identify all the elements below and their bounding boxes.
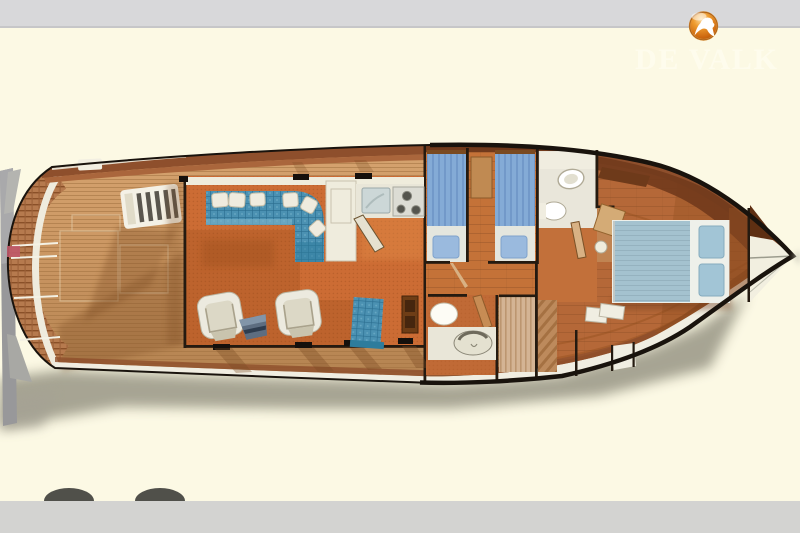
svg-text:DE VALK: DE VALK bbox=[635, 43, 780, 76]
